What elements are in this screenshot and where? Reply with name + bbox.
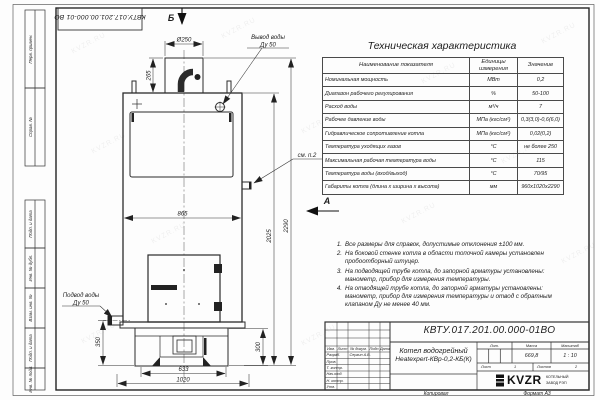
margin-label-perv-primen: Перв. примен. [28, 34, 33, 63]
margin-blocks [25, 10, 45, 390]
tb-sheet-label: Лист [481, 365, 491, 369]
spec-row: Температура воды (вход/выход)°С70/95 [323, 167, 564, 180]
tb-sheet-value: 1 [514, 365, 516, 369]
spec-col-units: Единицы измерения [470, 58, 518, 74]
spec-cell-name: Температура воды (вход/выход) [323, 167, 470, 180]
spec-cell-unit: МПа (кгс/см²) [470, 114, 518, 127]
notes-list: 1.Все размеры для справок, допустимые от… [331, 241, 573, 311]
tb-col-list: Лист [338, 347, 348, 351]
spec-cell-name: Диапазон рабочего регулирования [323, 87, 470, 100]
dim-total-width: 1020 [176, 378, 190, 384]
margin-label-inv-podl: Инв. № подл. [28, 365, 33, 392]
margin-label-sprav-no: Справ. № [28, 117, 33, 137]
footer-copied-label: Копировал [424, 391, 449, 397]
dim-inlet-height: 350 [96, 336, 102, 347]
spec-header-row: Наименование показателя Единицы измерени… [323, 58, 564, 74]
tb-scale-label: Масштаб [561, 344, 579, 348]
view-a-letter: А [323, 196, 331, 206]
spec-row: Номинальная мощностьМВт0,2 [323, 74, 564, 87]
spec-cell-value: 0,2 [518, 74, 564, 87]
dim-body-width: 865 [177, 212, 188, 218]
drawing-sheet: KVZR.RU KVZR.RU KVZR.RU KVZR.RU KVZR.RU … [0, 0, 600, 400]
spec-cell-value: 960х1020х2290 [518, 181, 564, 194]
note-number: 4. [331, 285, 345, 309]
tb-col-izm: Изм. [327, 347, 335, 351]
tb-scale-value: 1 : 10 [563, 353, 577, 359]
tb-row-tkontr: Т. контр. [327, 366, 343, 370]
spec-cell-unit: °С [470, 154, 518, 167]
spec-cell-name: Рабочее давление воды [323, 114, 470, 127]
spec-cell-value: 7 [518, 100, 564, 113]
footer-format-label: Формат А3 [523, 391, 550, 397]
kvzr-logo-icon [496, 375, 504, 387]
spec-cell-value: не более 250 [518, 140, 564, 153]
title-block-name-line1: Котел водогрейный [399, 346, 467, 355]
tb-row-razrab-name: Сергин А.В. [350, 353, 371, 357]
callout-water-outlet-line1: Вывод воды [251, 35, 285, 41]
note-text: На отводящей трубе котла, до запорной ар… [345, 285, 573, 309]
note-number: 3. [331, 268, 345, 284]
kvzr-logo-text: KVZR [507, 373, 542, 387]
corner-stamp-number: КВТУ.017.201.00.000-01 ВО [54, 13, 146, 20]
note-text: Все размеры для справок, допустимые откл… [345, 241, 524, 249]
tb-sheets-value: 2 [575, 365, 577, 369]
margin-label-inv-dubl: Инв. № дубл. [28, 254, 33, 281]
spec-cell-name: Габариты котла (длина х ширина х высота) [323, 181, 470, 194]
spec-table-title: Техническая характеристика [368, 40, 517, 52]
kvzr-logo-sub2: ЗАВОД РЭП [546, 381, 567, 385]
spec-row: Гидравлическое сопротивление котлаМПа (к… [323, 127, 564, 140]
note-item: 4.На отводящей трубе котла, до запорной … [331, 285, 573, 309]
spec-cell-value: 115 [518, 154, 564, 167]
callout-water-inlet-line2: Ду 50 [72, 301, 89, 307]
dim-base-width: 633 [178, 367, 189, 373]
section-b-letter: Б [168, 13, 175, 23]
note-text: На боковой стенке котла в области топочн… [345, 250, 573, 266]
title-block-doc-number: КВТУ.017.201.00.000-01ВО [424, 325, 556, 336]
spec-cell-unit: °С [470, 167, 518, 180]
spec-row: Габариты котла (длина х ширина х высота)… [323, 181, 564, 194]
spec-cell-unit: МПа (кгс/см²) [470, 127, 518, 140]
spec-cell-value: 0,02(0,2) [518, 127, 564, 140]
tb-mass-value: 669,8 [525, 353, 539, 359]
spec-cell-value: 50-100 [518, 87, 564, 100]
callout-water-inlet-line1: Подвод воды [63, 293, 100, 299]
tb-col-data: Дата [380, 347, 390, 351]
tb-col-doc: № докум. [350, 347, 367, 351]
tb-row-razrab: Разраб. [327, 353, 341, 357]
tb-lit-label: Лит. [490, 344, 499, 348]
dim-chimney-diameter: Ø250 [176, 38, 192, 44]
callout-see-note-2: см. п.2 [298, 153, 317, 159]
spec-cell-name: Гидравлическое сопротивление котла [323, 127, 470, 140]
note-number: 1. [331, 241, 345, 249]
tb-row-nkontr: Н. контр. [327, 379, 344, 383]
spec-cell-unit: °С [470, 140, 518, 153]
spec-cell-unit: м³/ч [470, 100, 518, 113]
margin-label-vzam-inv: Взам. инв. № [28, 294, 33, 321]
spec-row: Диапазон рабочего регулирования%50-100 [323, 87, 564, 100]
spec-col-value: Значение [518, 58, 564, 74]
spec-cell-value: 70/95 [518, 167, 564, 180]
kvzr-logo-sub1: КОТЕЛЬНЫЙ [546, 375, 569, 379]
spec-table: Наименование показателя Единицы измерени… [322, 57, 564, 195]
tb-mass-label: Масса [526, 344, 537, 348]
dim-total-height: 2290 [284, 219, 290, 234]
tb-row-prov: Пров. [327, 360, 337, 364]
spec-row: Максимальная рабочая температура воды°С1… [323, 154, 564, 167]
note-number: 2. [331, 250, 345, 266]
leader-lines [62, 48, 322, 317]
spec-cell-name: Температура уходящих газов [323, 140, 470, 153]
spec-cell-name: Расход воды [323, 100, 470, 113]
tb-row-nachotd: Нач.отд. [327, 372, 343, 376]
callout-water-outlet-line2: Ду 50 [259, 43, 276, 49]
spec-cell-unit: МВт [470, 74, 518, 87]
spec-row: Температура уходящих газов°Сне более 250 [323, 140, 564, 153]
spec-row: Расход водым³/ч7 [323, 100, 564, 113]
note-item: 2.На боковой стенке котла в области топо… [331, 250, 573, 266]
tb-col-podp: Подп. [369, 347, 379, 351]
margin-label-podp-data-1: Подп. и дата [28, 210, 33, 238]
note-text: На подводящей трубе котла, до запорной а… [345, 268, 573, 284]
dim-chimney-height: 265 [147, 70, 153, 82]
note-item: 1.Все размеры для справок, допустимые от… [331, 241, 573, 249]
dim-body-height: 2025 [267, 229, 273, 244]
dim-base-height: 300 [256, 341, 262, 352]
spec-cell-name: Номинальная мощность [323, 74, 470, 87]
title-block-name-line2: Heatexpert-КВр-0,2-КБ(К) [395, 356, 471, 363]
note-item: 3.На подводящей трубе котла, до запорной… [331, 268, 573, 284]
spec-cell-unit: мм [470, 181, 518, 194]
spec-cell-name: Максимальная рабочая температура воды [323, 154, 470, 167]
tb-row-utv: Утв. [327, 385, 336, 389]
spec-cell-unit: % [470, 87, 518, 100]
tb-sheets-label: Листов [537, 365, 551, 369]
spec-col-name: Наименование показателя [323, 58, 470, 74]
margin-label-podp-data-2: Подп. и дата [28, 334, 33, 362]
spec-cell-value: 0,3(3,0)-0,6(6,0) [518, 114, 564, 127]
spec-row: Рабочее давление водыМПа (кгс/см²)0,3(3,… [323, 114, 564, 127]
